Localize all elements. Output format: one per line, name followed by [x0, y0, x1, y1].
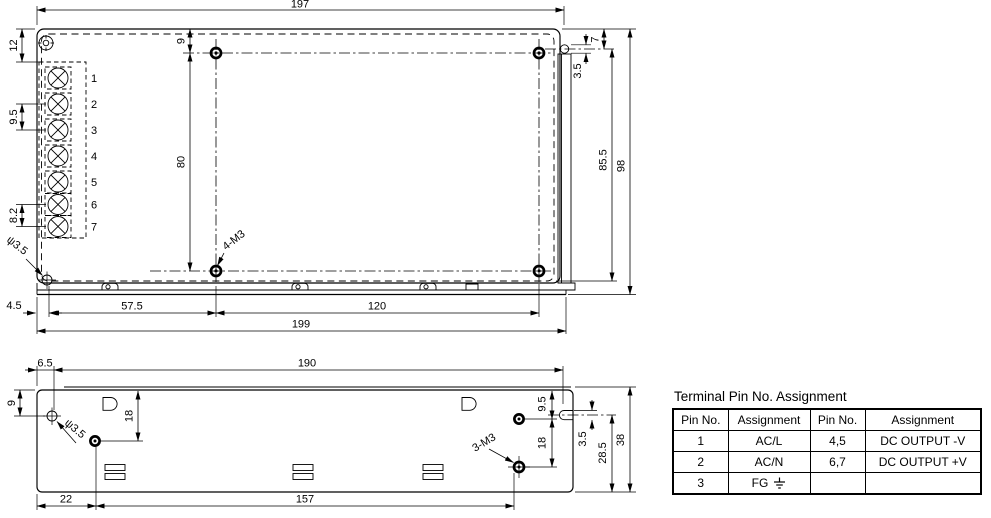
- pin-table-row-3: 3 FG: [673, 473, 981, 495]
- cell-assignment-empty: [865, 473, 981, 495]
- terminal-pin-table: Terminal Pin No. Assignment Pin No. Assi…: [672, 389, 987, 495]
- cell-pin-2: 2: [673, 452, 728, 473]
- chassis-tabs: [102, 283, 478, 290]
- dim-28_5: 28.5: [597, 442, 609, 463]
- pin-table-header-row: Pin No. Assignment Pin No. Assignment: [673, 409, 981, 431]
- terminal-6: [45, 194, 71, 216]
- pin-label-6: 6: [91, 200, 97, 212]
- pin-assignment-table: Pin No. Assignment Pin No. Assignment 1 …: [672, 408, 982, 495]
- cell-assignment-45: DC OUTPUT -V: [865, 431, 981, 452]
- top-view-body: [37, 29, 575, 295]
- label-corner-hole-dia: ψ3.5: [4, 234, 30, 258]
- dim-7: 7: [590, 36, 602, 42]
- label-bottom-corner-hole-dia: ψ3.5: [62, 417, 87, 441]
- dim-80: 80: [176, 156, 188, 168]
- label-mounting-holes: 4-M3: [220, 228, 247, 253]
- pin-table-row-1: 1 AC/L 4,5 DC OUTPUT -V: [673, 431, 981, 452]
- pin-label-2: 2: [91, 99, 97, 111]
- dim-18-left: 18: [124, 410, 136, 422]
- enclosure-drawing: 1 2 3 4 5 6 7: [0, 0, 660, 518]
- dim-57_5: 57.5: [121, 301, 142, 313]
- terminal-7: [45, 216, 71, 238]
- cell-pin-45: 4,5: [810, 431, 865, 452]
- dim-9-top: 9: [176, 38, 188, 44]
- dim-38: 38: [615, 434, 627, 446]
- dim-120: 120: [368, 301, 386, 313]
- pin-table-title: Terminal Pin No. Assignment: [674, 389, 987, 404]
- dim-6_5: 6.5: [37, 358, 52, 370]
- cell-assignment-1: AC/L: [728, 431, 810, 452]
- header-assignment-2: Assignment: [865, 409, 981, 431]
- terminal-3: [45, 119, 71, 141]
- louver-right: [462, 398, 476, 411]
- center-lines: [150, 39, 614, 282]
- header-assignment-1: Assignment: [728, 409, 810, 431]
- pin-label-7: 7: [91, 222, 97, 234]
- dim-22: 22: [60, 494, 72, 506]
- dim-190: 190: [298, 358, 316, 370]
- dim-12: 12: [8, 39, 20, 51]
- dim-157: 157: [296, 494, 314, 506]
- cell-assignment-67: DC OUTPUT +V: [865, 452, 981, 473]
- terminal-2: [45, 93, 71, 115]
- dim-197: 197: [291, 0, 309, 11]
- dim-9-bottom: 9: [6, 400, 18, 406]
- terminal-5: [45, 171, 71, 193]
- dim-9_5-right: 9.5: [537, 396, 549, 411]
- pin-label-1: 1: [91, 73, 97, 85]
- cell-pin-1: 1: [673, 431, 728, 452]
- terminal-4: [45, 145, 71, 167]
- louver-left: [103, 398, 117, 411]
- dim-85_5: 85.5: [598, 149, 610, 170]
- dim-18-right: 18: [537, 437, 549, 449]
- dim-199: 199: [292, 319, 310, 331]
- header-pin-no-1: Pin No.: [673, 409, 728, 431]
- cell-pin-67: 6,7: [810, 452, 865, 473]
- side-notch: [548, 411, 616, 420]
- label-bottom-mounting-holes: 3-M3: [470, 431, 498, 454]
- cell-pin-empty: [810, 473, 865, 495]
- dim-3_5-top: 3.5: [572, 63, 584, 78]
- pin-table-row-2: 2 AC/N 6,7 DC OUTPUT +V: [673, 452, 981, 473]
- mechanical-drawing-page: 1 2 3 4 5 6 7: [0, 0, 991, 518]
- fg-label: FG: [752, 476, 769, 490]
- cover-screw-hole: [38, 35, 54, 51]
- cell-assignment-2: AC/N: [728, 452, 810, 473]
- vent-slots: [105, 465, 443, 480]
- terminal-block: 1 2 3 4 5 6 7: [39, 62, 97, 238]
- pin-label-4: 4: [91, 151, 97, 163]
- cell-pin-3: 3: [673, 473, 728, 495]
- bottom-screw-holes: [90, 414, 523, 445]
- dim-3_5-bottom: 3.5: [577, 431, 589, 446]
- dim-8_2: 8.2: [8, 208, 20, 223]
- dim-98: 98: [616, 160, 628, 172]
- dim-4_5: 4.5: [6, 300, 21, 312]
- terminal-1: [45, 67, 71, 89]
- header-pin-no-2: Pin No.: [810, 409, 865, 431]
- pin-label-3: 3: [91, 125, 97, 137]
- pin-label-5: 5: [91, 177, 97, 189]
- bottom-view-dimensions: 6.5 190 9 18 22 157 9.5 1: [6, 358, 636, 511]
- top-view: 1 2 3 4 5 6 7: [4, 0, 636, 334]
- cell-assignment-3: FG: [728, 473, 810, 495]
- mounting-holes-4m3: [211, 48, 544, 276]
- bottom-view: 6.5 190 9 18 22 157 9.5 1: [6, 358, 636, 511]
- dim-9_5: 9.5: [8, 109, 20, 124]
- earth-ground-icon: [773, 477, 786, 489]
